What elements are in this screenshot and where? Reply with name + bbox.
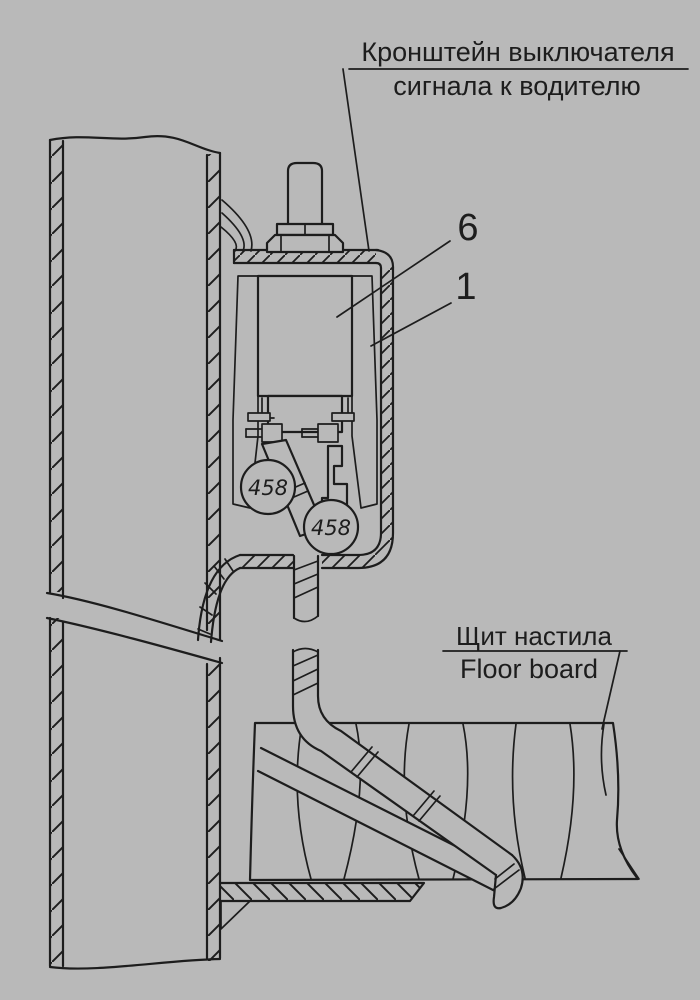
floor-caption-en: Floor board <box>460 654 598 684</box>
wire-tag-right: 458 <box>304 500 358 554</box>
callout-6-label: 6 <box>457 207 478 249</box>
floor-caption-ru: Щит настила <box>456 621 612 651</box>
bracket-caption-line1: Кронштейн выключателя <box>361 37 674 67</box>
wire-tag-left: 458 <box>241 460 295 514</box>
callout-1-label: 1 <box>455 266 476 308</box>
technical-illustration-page: 458 458 <box>0 0 700 1000</box>
switch-body <box>246 276 354 442</box>
switch-bracket-diagram: 458 458 <box>0 0 700 1000</box>
bracket-caption-line2: сигнала к водителю <box>393 71 640 101</box>
wire-tag-right-label: 458 <box>311 516 351 540</box>
wire-tag-left-label: 458 <box>248 476 288 500</box>
